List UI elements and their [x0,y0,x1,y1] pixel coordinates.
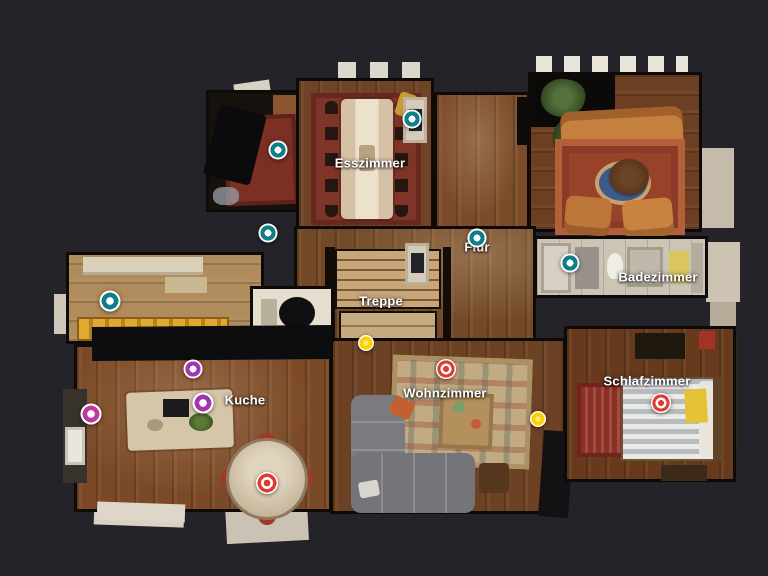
table-decor [471,419,481,429]
headboard [713,377,721,461]
marker-purple-kuche-island[interactable] [193,393,214,414]
island-bowl [147,419,163,431]
closet-right-badezimmer [706,242,740,302]
island-plant [189,413,213,431]
room-piano[interactable] [206,90,304,212]
vanity [691,243,703,293]
marker-yellow-wohnzimmer[interactable] [530,411,546,427]
room-label-esszimmer: Esszimmer [335,157,405,170]
bench [661,465,707,481]
storage-boxes [165,277,207,293]
room-badezimmer[interactable] [534,236,708,298]
marker-teal-hall-west[interactable] [259,224,278,243]
marker-purple-kuche-north[interactable] [184,360,203,379]
pillow-white [358,479,380,498]
closet-right-upper [702,148,734,228]
room-label-treppe: Treppe [359,295,403,308]
table-plant [453,401,465,413]
desk-items [261,299,277,325]
room-label-kuche: Kuche [225,394,266,407]
room-sitting[interactable] [528,72,702,232]
armchair [563,195,612,237]
marker-red-wohnzimmer[interactable] [436,359,456,379]
coffee-table [438,392,494,450]
marker-teal-flur[interactable] [468,229,487,248]
dresser [635,333,685,359]
marker-red-kuche-table[interactable] [256,472,278,494]
marker-teal-esszimmer[interactable] [403,110,422,129]
armchair [621,197,674,239]
stairs-lower-flight [339,311,437,341]
hall-top[interactable] [434,92,530,232]
sink-left [65,427,85,465]
room-kuche[interactable] [74,344,332,512]
marker-teal-badezimmer[interactable] [561,254,580,273]
marker-red-schlafzimmer[interactable] [651,393,671,413]
floorplan-viewport: EsszimmerFlurTreppeBadezimmerKucheWohnzi… [0,0,768,576]
room-label-schlafzimmer: Schlafzimmer [604,375,691,388]
floor-cushion [213,187,239,205]
island-sink [163,399,189,417]
marker-teal-piano-room[interactable] [269,141,288,160]
kitchen-counters-dark [92,325,332,361]
marker-yellow-treppe[interactable] [358,335,374,351]
marker-magenta-kuche-west[interactable] [81,404,102,425]
doormat-south [411,253,424,273]
wall-stub [443,247,451,343]
shelf-unit [83,257,203,275]
floor-sheen [437,95,527,229]
room-label-badezimmer: Badezimmer [618,271,697,284]
blanket-yellow [684,388,708,423]
window-sills-esszimmer [338,62,428,78]
marker-teal-pantry[interactable] [100,291,121,312]
side-table [479,463,509,493]
red-chest [699,331,715,349]
room-schlafzimmer[interactable] [564,326,736,482]
coffee-table-round [609,159,649,195]
cabinets-bottom [97,501,186,522]
room-label-wohnzimmer: Wohnzimmer [403,387,486,400]
bath-floor-dark [575,247,599,289]
